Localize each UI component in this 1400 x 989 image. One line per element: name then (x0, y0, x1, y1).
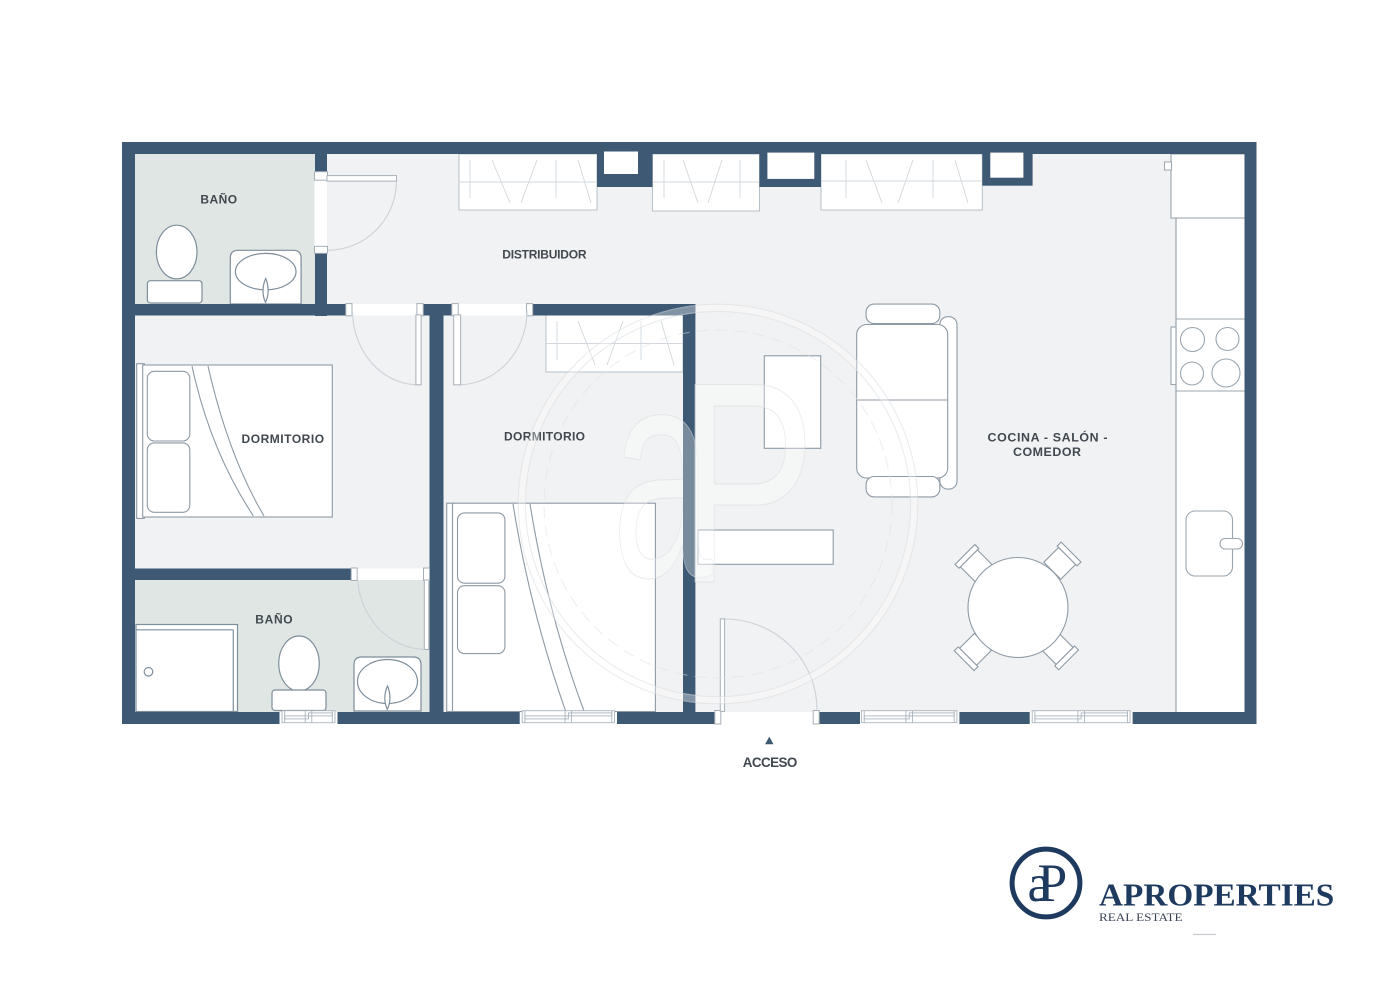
svg-text:REAL ESTATE: REAL ESTATE (1099, 910, 1183, 924)
svg-text:APROPERTIES: APROPERTIES (1099, 876, 1334, 912)
svg-text:BAÑO: BAÑO (200, 192, 237, 207)
svg-text:DISTRIBUIDOR: DISTRIBUIDOR (502, 247, 587, 261)
svg-text:DORMITORIO: DORMITORIO (504, 429, 585, 443)
svg-text:COCINA - SALÓN -: COCINA - SALÓN - (988, 430, 1108, 445)
svg-text:BAÑO: BAÑO (255, 611, 292, 626)
svg-text:P: P (678, 323, 816, 643)
svg-text:DORMITORIO: DORMITORIO (242, 432, 325, 446)
svg-text:COMEDOR: COMEDOR (1013, 445, 1081, 459)
svg-text:ACCESO: ACCESO (743, 755, 798, 770)
svg-text:P: P (1038, 853, 1068, 913)
